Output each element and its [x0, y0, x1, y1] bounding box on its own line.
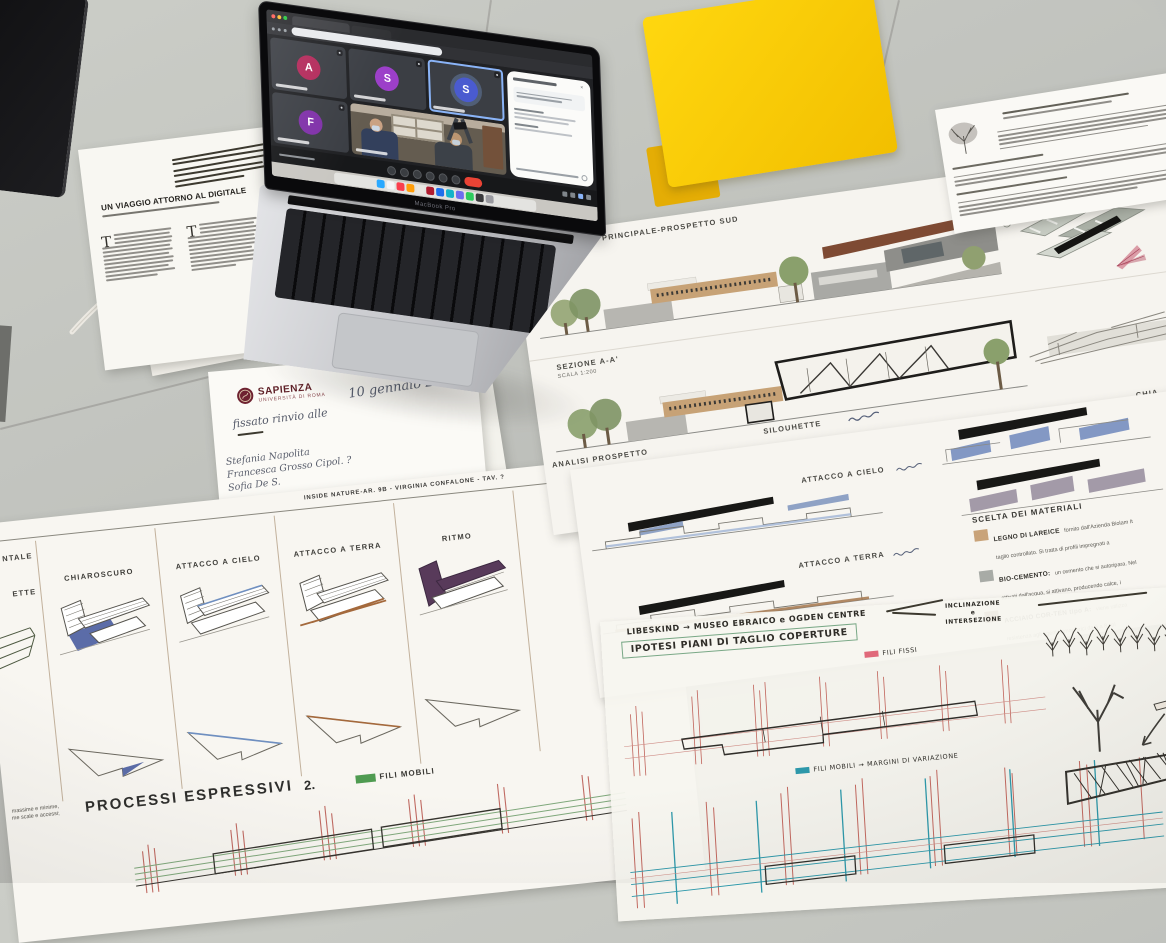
- desk-photo: { "meet": { "tiles": [ {"letter":"A","st…: [0, 0, 1166, 883]
- more-options-button: [451, 174, 460, 184]
- tree-section-sketch: [1039, 653, 1166, 833]
- dock-icon-notes: [416, 185, 424, 194]
- yellow-folder: [642, 0, 898, 188]
- article-column: T: [186, 215, 264, 274]
- raise-hand-button: [425, 170, 434, 180]
- traffic-light-green: [283, 16, 287, 21]
- fili-fissi-grid: [608, 655, 1053, 782]
- legend-swatch-pink: [864, 651, 879, 658]
- participant-tile-selected: S: [427, 59, 504, 121]
- avatar: S: [454, 76, 479, 104]
- avatar-letter: F: [307, 116, 314, 129]
- dock-icon-photos: [406, 183, 414, 192]
- material-desc: un cemento che si autoripara. Nel: [1055, 560, 1137, 577]
- chat-input: [516, 166, 588, 182]
- meeting-time-code: [279, 153, 315, 161]
- second-laptop-corner: [0, 0, 89, 198]
- mic-off-icon: [337, 49, 343, 56]
- legend-swatch-teal: [795, 767, 810, 774]
- avatar-letter: A: [305, 61, 313, 74]
- forward-icon: [278, 28, 281, 31]
- axonometric-drawing-chiaroscuro: [45, 584, 164, 671]
- ink-line: [237, 431, 263, 436]
- phone-held-up: [453, 122, 467, 130]
- ink-scribble: [1038, 592, 1148, 606]
- dock-icon-mail: [436, 188, 444, 197]
- send-icon: [581, 175, 587, 182]
- ink-scribble: [892, 612, 936, 616]
- margin-note: massime e minime, me scale e accessi;: [1, 804, 60, 824]
- column-label: ATTACCO A TERRA: [277, 539, 397, 560]
- chat-title: [513, 77, 557, 86]
- dock-icon-appstore: [455, 190, 463, 199]
- column-label: CHIAROSCURO: [39, 564, 159, 585]
- traffic-light-yellow: [277, 15, 281, 20]
- dock-icon-terminal: [475, 193, 483, 202]
- material-swatch-legno: [973, 529, 988, 542]
- reload-icon: [284, 28, 287, 31]
- pencil-sketch: [1014, 294, 1166, 378]
- legend-swatch-green: [355, 773, 376, 783]
- people-icon: [570, 192, 575, 198]
- legend-fili-fissi: FILI FISSI: [864, 646, 918, 659]
- triangle-diagram-chiaroscuro: [59, 718, 177, 789]
- column-label-partial: ETTE: [0, 587, 37, 602]
- material-name: BIO-CEMENTO:: [999, 570, 1051, 584]
- tree-photo-icon: [943, 117, 984, 158]
- pen-squiggle-icon: [894, 461, 925, 474]
- back-icon: [272, 27, 275, 30]
- sapienza-logo-icon: [235, 386, 255, 406]
- triangle-diagram-ritmo: [416, 668, 534, 739]
- column-label: ATTACCO A CIELO: [158, 552, 278, 573]
- info-icon: [562, 191, 567, 197]
- tree-row-sketch: [1040, 606, 1166, 660]
- participant-name-label: [354, 94, 386, 101]
- mic-button: [386, 165, 395, 175]
- dock-icon-facetime: [376, 179, 384, 188]
- meeting-side-icons: [562, 191, 591, 200]
- avatar: A: [297, 54, 322, 82]
- avatar-letter: S: [462, 83, 470, 96]
- column-label-partial: NTALE: [0, 551, 33, 566]
- cielo-line-drawing: [584, 473, 889, 567]
- participant-name-label: [433, 105, 465, 112]
- pen-squiggle-icon: [891, 546, 922, 559]
- activities-icon: [586, 195, 591, 201]
- dock-icon-music: [396, 182, 404, 191]
- present-button: [438, 172, 447, 182]
- desk-seam: [0, 374, 216, 430]
- footer-number: 2.: [303, 777, 315, 793]
- room-door: [482, 125, 504, 170]
- axonometric-drawing-partial: [0, 619, 43, 680]
- handwritten-note: INCLINAZIONE e INTERSEZIONE: [937, 599, 1008, 627]
- axonometric-drawing-ritmo: [402, 543, 522, 634]
- drop-cap: T: [100, 233, 112, 252]
- participant-name-label: [276, 83, 308, 90]
- participant-name-label: [278, 137, 310, 144]
- traffic-light-red: [271, 14, 275, 19]
- drop-cap: T: [186, 222, 198, 241]
- end-call-button: [464, 176, 482, 188]
- avatar: S: [375, 65, 400, 93]
- desk-edge-dark: [0, 325, 12, 422]
- dock-icon-adobe: [426, 186, 434, 195]
- participant-tile: F: [272, 91, 349, 153]
- participant-tile: S: [349, 48, 426, 110]
- triangle-diagram-cielo: [178, 701, 296, 772]
- sheet-tracing: LIBESKIND → MUSEO EBRAICO e OGDEN CENTRE…: [600, 586, 1166, 921]
- legend-fili-mobili: FILI MOBILI: [355, 766, 435, 783]
- dock-icon-trash: [485, 194, 493, 203]
- handwritten-names: Stefania Napolita Francesca Grosso Cipol…: [225, 444, 353, 492]
- material-name: LEGNO DI LAREICE: [993, 528, 1060, 544]
- camera-button: [399, 167, 408, 177]
- mic-off-icon: [339, 104, 345, 111]
- participant-tile: A: [270, 37, 347, 99]
- person-seated: [361, 127, 399, 160]
- fili-grid-drawing: [62, 769, 642, 904]
- legend-label: FILI MOBILI: [379, 766, 435, 781]
- chat-info-box: [513, 86, 585, 111]
- material-desc: fornito dall'Azienda Biolam It: [1064, 519, 1133, 534]
- captions-button: [412, 169, 421, 179]
- dock-icon-finder: [386, 181, 394, 190]
- axonometric-drawing-cielo: [164, 572, 283, 659]
- mic-off-icon: [494, 72, 500, 79]
- chat-icon: [578, 193, 583, 199]
- material-swatch-biocemento: [979, 570, 994, 583]
- chat-panel: ×: [507, 70, 594, 187]
- avatar-letter: S: [384, 72, 392, 85]
- close-icon: ×: [580, 86, 584, 91]
- handwritten-line: fissato rinvio alle: [232, 406, 328, 431]
- mic-off-icon: [415, 61, 421, 68]
- legend-label: FILI FISSI: [882, 646, 918, 657]
- avatar: F: [298, 108, 323, 136]
- dock-icon-messages: [465, 192, 473, 201]
- axonometric-drawing-terra: [283, 559, 402, 646]
- triangle-diagram-terra: [297, 685, 415, 756]
- article-column: T: [100, 225, 178, 284]
- dock-icon-safari: [445, 189, 453, 198]
